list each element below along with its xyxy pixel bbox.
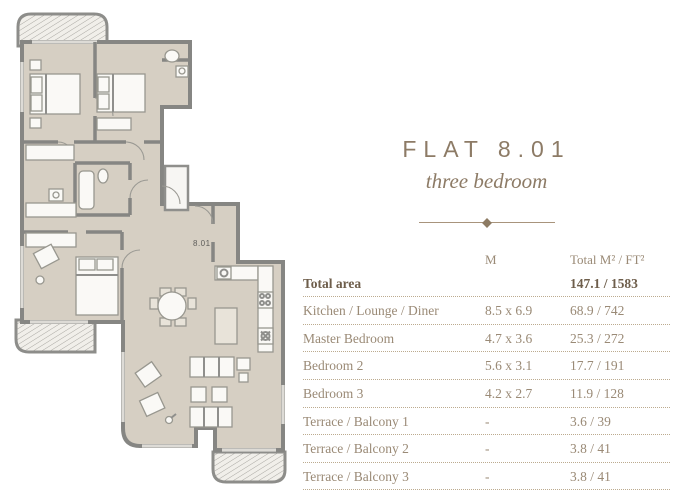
row-area: 3.6 / 39: [570, 414, 670, 430]
row-label: Total area: [303, 276, 485, 292]
row-dims: 4.2 x 2.7: [485, 386, 570, 402]
table-row: Terrace / Balcony 2 - 3.8 / 41: [303, 435, 670, 463]
table-body: Total area 147.1 / 1583 Kitchen / Lounge…: [303, 270, 670, 490]
row-area: 68.9 / 742: [570, 303, 670, 319]
floor-plan-svg: 8.01: [0, 0, 339, 504]
header-dims-cell: M: [485, 253, 570, 268]
row-label: Terrace / Balcony 2: [303, 441, 485, 457]
table-row: Total area 147.1 / 1583: [303, 270, 670, 298]
row-dims: 5.6 x 3.1: [485, 358, 570, 374]
row-area: 147.1 / 1583: [570, 276, 670, 292]
table-row: Bedroom 2 5.6 x 3.1 17.7 / 191: [303, 352, 670, 380]
table-row: Bedroom 3 4.2 x 2.7 11.9 / 128: [303, 380, 670, 408]
row-dims: 4.7 x 3.6: [485, 331, 570, 347]
table-row: Master Bedroom 4.7 x 3.6 25.3 / 272: [303, 325, 670, 353]
row-area: 11.9 / 128: [570, 386, 670, 402]
table-row: Terrace / Balcony 3 - 3.8 / 41: [303, 463, 670, 491]
row-area: 17.7 / 191: [570, 358, 670, 374]
flat-subtitle: three bedroom: [303, 169, 670, 194]
ornament-divider: [419, 218, 555, 227]
terrace-balcony-2: [16, 320, 95, 352]
area-table: M Total M² / FT² Total area 147.1 / 1583…: [303, 247, 670, 490]
floor-plan: 8.01: [0, 0, 339, 504]
row-area: 3.8 / 41: [570, 469, 670, 485]
sideboard-icon: [215, 308, 237, 344]
flat-title: FLAT 8.01: [303, 136, 670, 163]
row-dims: -: [485, 441, 570, 457]
row-label: Bedroom 3: [303, 386, 485, 402]
header-area-cell: Total M² / FT²: [570, 253, 670, 268]
service-shaft: [165, 166, 188, 210]
row-label: Terrace / Balcony 1: [303, 414, 485, 430]
diamond-icon: [482, 218, 492, 228]
table-row: Terrace / Balcony 1 - 3.6 / 39: [303, 408, 670, 436]
row-dims: 8.5 x 6.9: [485, 303, 570, 319]
row-label: Kitchen / Lounge / Diner: [303, 303, 485, 319]
terrace-balcony-3: [213, 452, 285, 482]
row-area: 3.8 / 41: [570, 441, 670, 457]
row-dims: -: [485, 469, 570, 485]
row-dims: -: [485, 414, 570, 430]
brochure-page: 8.01 FLAT 8.01 three bedroom M Total M² …: [0, 0, 678, 504]
title-block: FLAT 8.01 three bedroom: [303, 136, 670, 227]
row-area: 25.3 / 272: [570, 331, 670, 347]
row-label: Master Bedroom: [303, 331, 485, 347]
row-label: Terrace / Balcony 3: [303, 469, 485, 485]
row-label: Bedroom 2: [303, 358, 485, 374]
table-row: Kitchen / Lounge / Diner 8.5 x 6.9 68.9 …: [303, 297, 670, 325]
info-panel: FLAT 8.01 three bedroom M Total M² / FT²…: [303, 0, 670, 504]
unit-number-label: 8.01: [193, 239, 211, 248]
table-header-row: M Total M² / FT²: [303, 247, 670, 270]
